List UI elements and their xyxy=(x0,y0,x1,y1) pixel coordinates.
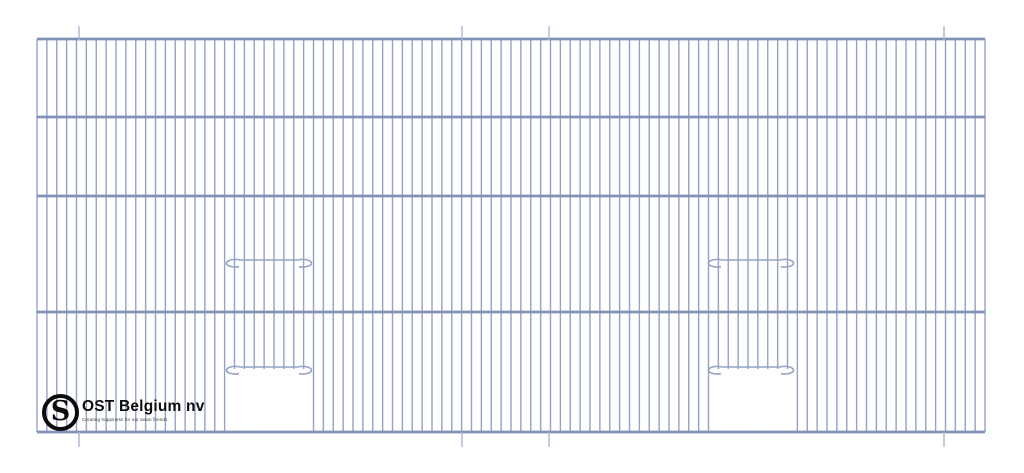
door-bar-hook-right xyxy=(299,259,312,267)
logo-monogram: S xyxy=(51,398,71,425)
company-name: OST Belgium nv xyxy=(82,399,205,415)
door-bar-hook-left xyxy=(226,259,239,267)
company-logo: S OST Belgium nv Creating happiness for … xyxy=(42,394,205,431)
door-opening xyxy=(227,369,313,430)
door-bar-hook-left xyxy=(708,259,721,267)
door-opening xyxy=(710,369,796,430)
logo-ring-icon: S xyxy=(42,394,79,431)
cage-front-drawing-sheet: S OST Belgium nv Creating happiness for … xyxy=(0,0,1024,473)
logo-text-block: OST Belgium nv Creating happiness for ou… xyxy=(82,394,205,422)
company-tagline: Creating happiness for our avian friends… xyxy=(82,417,205,422)
